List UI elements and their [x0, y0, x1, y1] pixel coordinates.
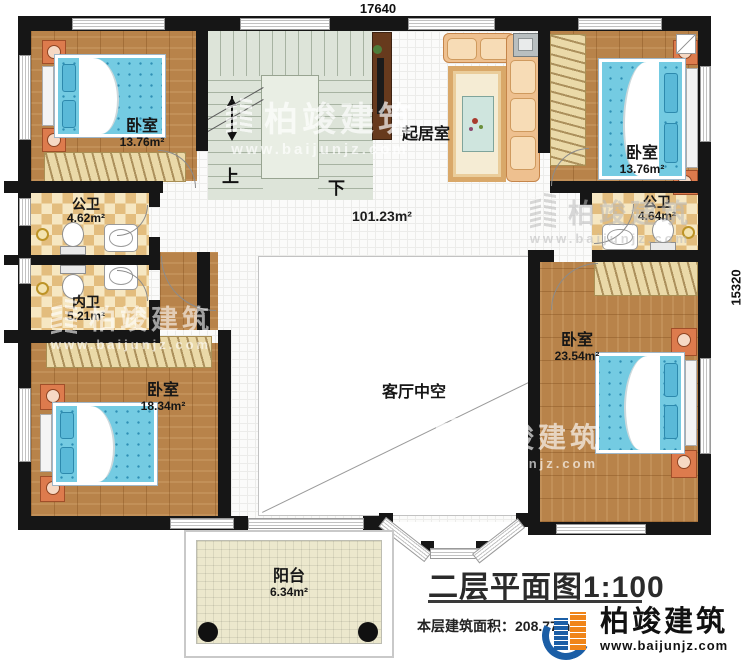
- towel-ring-icon: [36, 282, 49, 295]
- pillow: [664, 405, 678, 439]
- room-label-bedroom-bottom-left: 卧室 18.34m²: [121, 382, 205, 414]
- corner-shelf: [676, 34, 696, 54]
- sofa-cushion: [510, 136, 536, 170]
- wall: [149, 193, 160, 207]
- window: [700, 66, 711, 142]
- pillow: [60, 412, 74, 439]
- company-logo: 柏竣建筑 www.baijunjz.com: [538, 596, 750, 668]
- wall: [528, 250, 540, 522]
- room-label-bedroom-right: 卧室 23.54m²: [535, 332, 619, 364]
- column: [198, 622, 218, 642]
- plant-icon: [373, 45, 382, 54]
- floor-plan: 上 下: [0, 0, 750, 669]
- room-label-living-room: 起居室: [398, 126, 454, 144]
- window: [556, 524, 646, 534]
- room-label-bath-public-right: 公卫 4.64m²: [622, 194, 692, 224]
- wall: [196, 31, 208, 151]
- towel-ring-icon: [682, 226, 695, 239]
- wall: [218, 330, 231, 516]
- pillow: [62, 64, 76, 92]
- wall: [580, 193, 592, 205]
- pillow: [664, 363, 678, 397]
- stair-down-label: 下: [328, 174, 345, 199]
- window: [19, 55, 31, 140]
- column: [358, 622, 378, 642]
- wall: [540, 250, 554, 262]
- wall: [592, 250, 698, 262]
- window: [19, 258, 31, 284]
- towel-ring-icon: [36, 228, 49, 241]
- pillow: [62, 100, 76, 128]
- dimension-right: 15320: [729, 258, 744, 318]
- window: [700, 358, 711, 454]
- window: [240, 18, 330, 30]
- wall-pier: [4, 255, 18, 265]
- window: [72, 18, 165, 30]
- room-label-bedroom-top-right: 卧室 13.76m²: [600, 145, 684, 177]
- wall: [31, 181, 163, 193]
- wall-pier: [4, 330, 18, 343]
- stair-arrow-head-down: [227, 132, 237, 146]
- wardrobe-top-right: [550, 34, 586, 166]
- stair-treads-right: [318, 76, 373, 200]
- room-label-bedroom-top-left: 卧室 13.76m²: [100, 118, 184, 150]
- bed-headboard: [40, 414, 52, 472]
- company-website: www.baijunjz.com: [600, 638, 750, 653]
- toilet-tank: [60, 265, 86, 274]
- window: [19, 388, 31, 462]
- sofa-cushion: [510, 60, 536, 94]
- wall: [538, 31, 550, 153]
- balcony-door-window: [248, 518, 364, 529]
- bed-headboard: [686, 68, 698, 168]
- floor-area-label: 本层建筑面积：: [417, 618, 515, 634]
- pillow: [60, 447, 74, 474]
- window: [408, 18, 495, 30]
- pillow: [664, 73, 678, 113]
- stair-landing: [261, 75, 319, 179]
- bed-frame: [52, 402, 158, 486]
- company-logo-icon: [540, 604, 598, 664]
- wall-pier: [4, 181, 18, 193]
- flowers-icon: [472, 118, 478, 124]
- room-label-balcony: 阳台 6.34m²: [247, 568, 331, 600]
- toilet-tank: [60, 246, 86, 255]
- wall: [31, 255, 149, 265]
- room-label-void: 客厅中空: [368, 384, 460, 402]
- hall-area-label: 101.23m²: [352, 208, 412, 224]
- dimension-top: 17640: [352, 1, 404, 16]
- nightstand: [671, 450, 697, 478]
- window: [170, 518, 234, 529]
- room-label-bath-inner: 内卫 5.21m²: [52, 294, 120, 324]
- window: [19, 198, 31, 226]
- wall: [149, 300, 160, 343]
- window: [578, 18, 662, 30]
- room-label-bath-public-left: 公卫 4.62m²: [52, 196, 120, 226]
- company-name: 柏竣建筑: [600, 598, 750, 640]
- coffee-table: [462, 96, 494, 152]
- wall: [149, 237, 160, 270]
- bed-headboard: [685, 360, 697, 446]
- wall: [31, 330, 160, 343]
- bed-frame: [595, 352, 685, 454]
- stair-up-label: 上: [222, 162, 239, 187]
- tv-icon: [377, 58, 384, 114]
- side-table-top: [518, 38, 533, 51]
- stair-treads-top: [208, 31, 373, 76]
- bed-headboard: [42, 66, 54, 126]
- sofa-cushion: [510, 98, 536, 132]
- sofa-cushion: [447, 38, 477, 60]
